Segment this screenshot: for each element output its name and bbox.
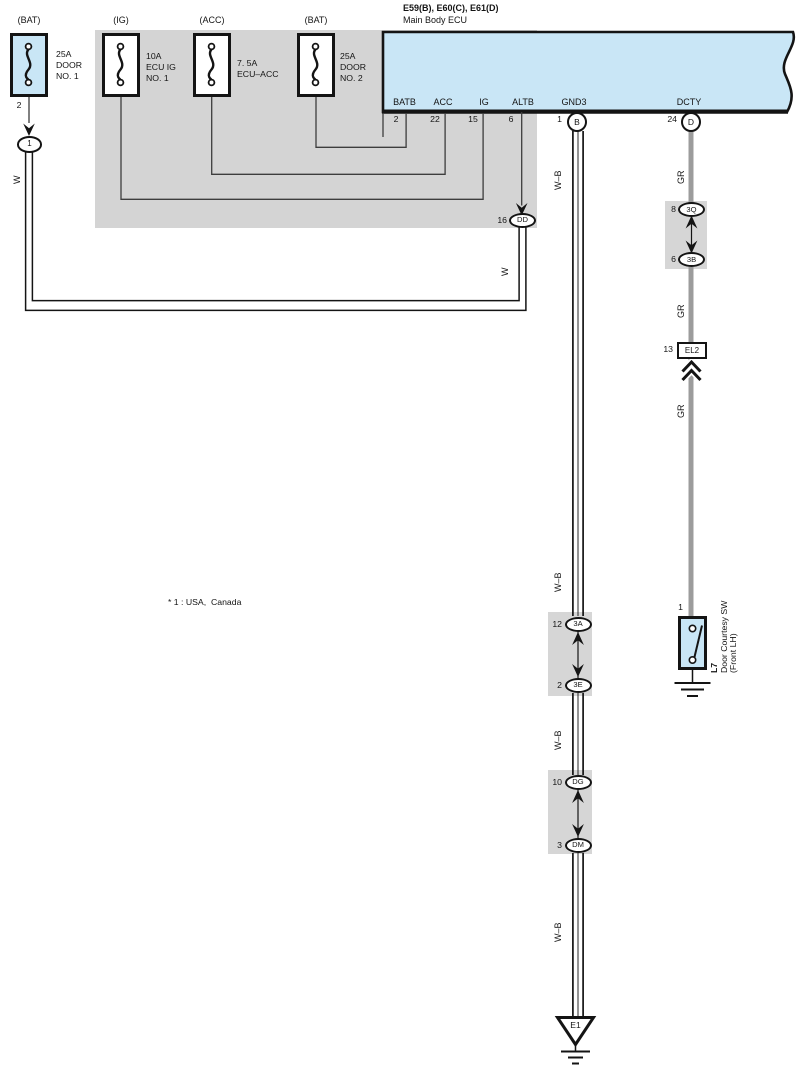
fuse-source-label: (BAT) — [297, 15, 335, 26]
connector-number-3e: 2 — [551, 680, 562, 691]
fuse-rating: 7. 5A — [237, 58, 279, 69]
ecu-pin-label-batb: BATB — [384, 97, 425, 108]
ground-label-e1: E1 — [565, 1020, 586, 1031]
fuse-name: ECU IG — [146, 62, 176, 73]
ecu-pin-number-batb: 2 — [389, 114, 403, 125]
arrow-down-icon — [23, 124, 35, 137]
ecu-pin-label-dcty: DCTY — [669, 97, 709, 108]
connector-number-3a: 12 — [547, 619, 562, 630]
ecu-pin-number-gnd3: 1 — [548, 114, 562, 125]
wires-layer — [0, 0, 807, 1073]
fuse-ecu-ig-no1 — [102, 33, 140, 97]
wire-label-gr: GR — [676, 405, 686, 419]
fuse-symbol-icon — [300, 36, 331, 93]
fuse-source-label: (ACC) — [193, 15, 231, 26]
ecu-pin-number-altb: 6 — [504, 114, 518, 125]
wire-ig-to-ecu — [121, 97, 483, 199]
switch-pin-number: 1 — [672, 602, 683, 613]
fuse-ecu-acc-text: 7. 5A ECU–ACC — [237, 58, 279, 80]
ecu-pin-number-acc: 22 — [428, 114, 442, 125]
door-courtesy-switch — [678, 616, 707, 670]
ecu-pin-label-acc: ACC — [423, 97, 463, 108]
connector-number-dd: 16 — [493, 215, 507, 226]
fuse-source-label: (IG) — [102, 15, 140, 26]
ground-symbol — [561, 1045, 590, 1064]
wire-acc-to-ecu — [212, 97, 445, 174]
wiring-diagram: (BAT) 25A DOOR NO. 1 2 (IG) 10A ECU IG N… — [0, 0, 807, 1073]
connector-oval-3b: 3B — [678, 252, 705, 267]
fuse-door-no1 — [10, 33, 48, 97]
fuse-rating: 25A — [340, 51, 366, 62]
wire-wb-segment1 — [573, 131, 583, 616]
wire-w-outer — [26, 152, 526, 310]
switch-location: (Front LH) — [729, 601, 739, 673]
switch-label: L7 Door Courtesy SW (Front LH) — [710, 601, 739, 673]
wire-label-wb: W–B — [553, 922, 563, 942]
ecu-pin-label-gnd3: GND3 — [554, 97, 594, 108]
ecu-pin-label-altb: ALTB — [503, 97, 543, 108]
fuse-door-no1-text: 25A DOOR NO. 1 — [56, 49, 82, 82]
connector-oval-dg: DG — [565, 775, 592, 790]
connector-oval-3a: 3A — [565, 617, 592, 632]
fuse-symbol-icon — [13, 36, 44, 93]
wire-label-gr: GR — [676, 171, 686, 185]
ground-symbol — [675, 670, 711, 696]
fuse-rating: 25A — [56, 49, 82, 60]
fuse-rating: 10A — [146, 51, 176, 62]
wire-label-gr: GR — [676, 305, 686, 319]
connector-number-el2: 13 — [658, 344, 673, 355]
fuse-name: DOOR — [56, 60, 82, 71]
fuse-door-no2-text: 25A DOOR NO. 2 — [340, 51, 366, 84]
connector-number-dg: 10 — [547, 777, 562, 788]
fuse-pin-number: 2 — [13, 100, 25, 111]
ecu-pin-label-ig: IG — [464, 97, 504, 108]
connector-number-3q: 8 — [666, 204, 676, 215]
fuse-symbol-icon — [196, 36, 227, 93]
connector-circle-b: B — [567, 112, 587, 132]
fuse-name: ECU–ACC — [237, 69, 279, 80]
fuse-ecu-acc — [193, 33, 231, 97]
fuse-name: NO. 1 — [56, 71, 82, 82]
switch-symbol-icon — [681, 619, 704, 667]
wire-wb-segment2 — [573, 693, 583, 775]
ecu-pin-number-ig: 15 — [466, 114, 480, 125]
connector-number-dm: 3 — [551, 840, 562, 851]
fuse-name: NO. 1 — [146, 73, 176, 84]
fuse-symbol-icon — [105, 36, 136, 93]
fuse-door-no2 — [297, 33, 335, 97]
ecu-title: E59(B), E60(C), E61(D) — [403, 3, 499, 14]
connector-oval-dm: DM — [565, 838, 592, 853]
fuse-ecu-ig-no1-text: 10A ECU IG NO. 1 — [146, 51, 176, 84]
ecu-subtitle: Main Body ECU — [403, 15, 467, 26]
connector-number-3b: 6 — [666, 254, 676, 265]
connector-oval-dd: DD — [509, 213, 536, 228]
wire-label-wb: W–B — [553, 730, 563, 750]
wire-wb-segment3 — [573, 853, 583, 1018]
wire-label-wb: W–B — [553, 170, 563, 190]
fuse-name: DOOR — [340, 62, 366, 73]
connector-box-el2: EL2 — [677, 342, 707, 359]
connector-oval-1: 1 — [17, 136, 42, 153]
connector-circle-d: D — [681, 112, 701, 132]
fuse-name: NO. 2 — [340, 73, 366, 84]
wire-label-w: W — [12, 176, 22, 185]
connector-oval-3e: 3E — [565, 678, 592, 693]
fuse-source-label: (BAT) — [10, 15, 48, 26]
connector-oval-3q: 3Q — [678, 202, 705, 217]
wire-label-wb: W–B — [553, 572, 563, 592]
ecu-pin-number-dcty: 24 — [662, 114, 677, 125]
wire-label-w: W — [500, 268, 510, 277]
note-usa-canada: * 1 : USA, Canada — [168, 597, 241, 608]
